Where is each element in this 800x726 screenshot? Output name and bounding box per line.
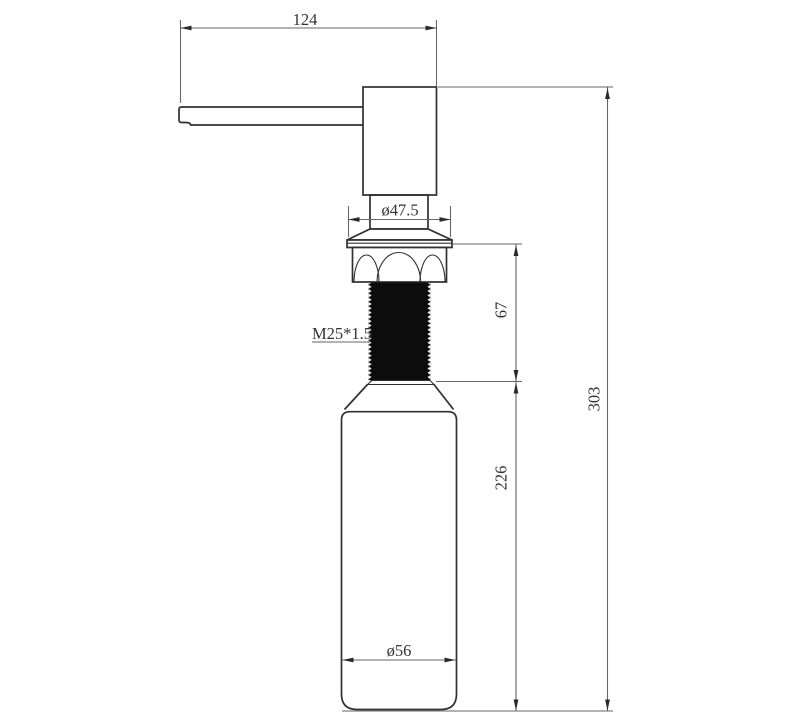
bottle-shoulder-right	[434, 385, 454, 410]
pump-head-body	[363, 87, 437, 195]
bottle-body	[342, 412, 457, 710]
dim-67-arrow-down	[514, 370, 519, 381]
dim-124-arrow-left	[181, 26, 192, 31]
dim-226-arrow-up	[514, 383, 519, 394]
dim-226-arrow-down	[514, 700, 519, 711]
thread-shank	[372, 283, 428, 381]
bottle-neck-flare	[368, 381, 435, 385]
dim-47-arrow-left	[349, 217, 360, 222]
dim-303-arrow-up	[605, 88, 610, 99]
dim-124-arrow-right	[426, 26, 437, 31]
spout-tube-outline	[179, 107, 363, 125]
thread-spec-text: M25*1.5	[312, 324, 372, 343]
dim-303-text: 303	[585, 387, 604, 412]
dim-56-text: ø56	[387, 641, 412, 660]
dim-124-text: 124	[293, 10, 318, 29]
dispenser-technical-drawing: 124 ø47.5 M25*1.5 67 226 303 ø56	[0, 0, 800, 726]
dim-56-arrow-right	[445, 658, 456, 663]
bottle-shoulder-left	[345, 385, 368, 410]
thread-teeth-right	[427, 283, 430, 381]
dim-47-arrow-right	[440, 217, 451, 222]
dim-47-text: ø47.5	[381, 201, 418, 220]
drawing-canvas: 124 ø47.5 M25*1.5 67 226 303 ø56	[0, 0, 800, 726]
dim-67-text: 67	[492, 302, 511, 319]
dim-303-arrow-down	[605, 700, 610, 711]
dim-67-arrow-up	[514, 245, 519, 256]
dim-56-arrow-left	[343, 658, 354, 663]
flange-cone	[347, 229, 452, 240]
dim-226-text: 226	[492, 466, 511, 491]
